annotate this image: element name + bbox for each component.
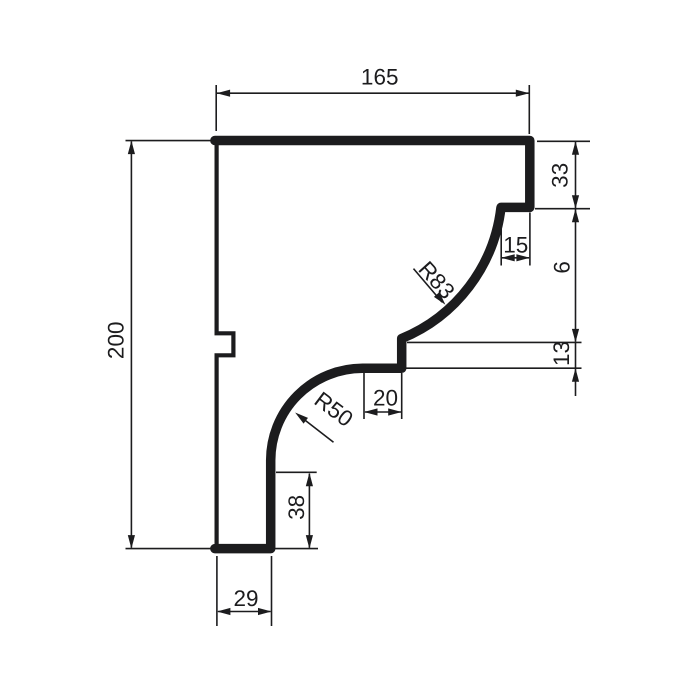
svg-text:165: 165 — [361, 64, 399, 89]
svg-text:38: 38 — [284, 495, 309, 520]
svg-text:29: 29 — [233, 586, 258, 611]
svg-text:33: 33 — [548, 163, 573, 188]
svg-text:20: 20 — [373, 385, 398, 410]
svg-text:200: 200 — [103, 322, 128, 360]
svg-text:13: 13 — [549, 341, 574, 366]
svg-text:15: 15 — [503, 232, 528, 257]
svg-text:6: 6 — [550, 261, 575, 274]
